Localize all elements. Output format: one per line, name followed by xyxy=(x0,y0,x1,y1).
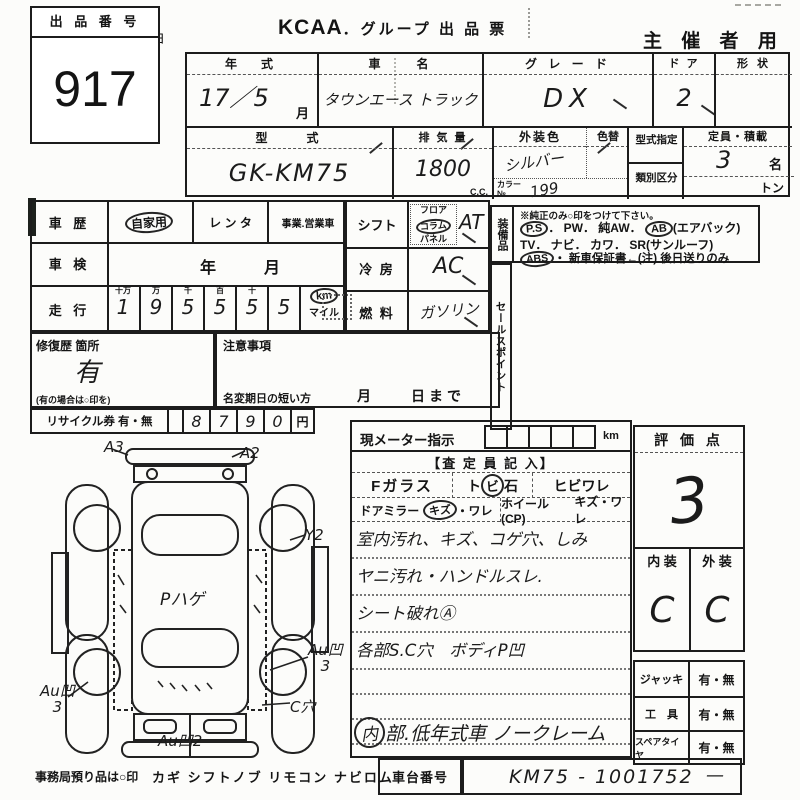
color-number-value: 199 xyxy=(529,179,560,202)
office-deposit-label: 事務局預り品は○印 xyxy=(35,768,138,785)
circled-interior-mark: 内 xyxy=(353,716,386,749)
equipment-line-3: ABS・ 新車保証書←(注) 後日送りのみ xyxy=(520,250,729,267)
sheet-title-rest: ．グループ 出 品 票 xyxy=(343,21,508,38)
damage-annotation: Pハゲ xyxy=(160,585,204,610)
year-cell: 年 式 17／5 月 xyxy=(187,54,317,126)
mileage-digit-cell: 百5 xyxy=(203,285,235,334)
recycle-digit: 0 xyxy=(263,410,290,432)
exterior-color-value: シルバー xyxy=(503,147,565,176)
recycle-digit: 7 xyxy=(209,410,236,432)
color-number-label: カラー№ xyxy=(497,180,521,198)
mileage-digit-cell: 万9 xyxy=(139,285,171,334)
shift-column-selected: コラム xyxy=(416,218,452,235)
capacity-cell: 定員・積載 3 名 トン xyxy=(682,126,792,199)
front-glass-label: Fガラス xyxy=(352,473,452,498)
repaint-label: 色替 xyxy=(586,128,629,147)
grade-label: グ レ ー ド xyxy=(484,54,652,75)
jack-row: ジャッキ 有・無 xyxy=(635,662,743,696)
fuel-value: ガソリン xyxy=(418,297,480,323)
assessor-note-line: 各部S.C穴 ボディP凹 xyxy=(352,633,630,670)
jack-label: ジャッキ xyxy=(635,662,690,696)
door-mirror-cell: ドアミラー キズ・ワレ xyxy=(352,498,500,522)
shift-label: シフト xyxy=(347,202,407,247)
meter-digit-box xyxy=(484,425,508,449)
jack-value: 有・無 xyxy=(690,662,743,696)
recycle-label: リサイクル券 有・無 xyxy=(32,410,167,432)
meter-digit-box xyxy=(528,425,552,449)
type-designation-label: 型式指定 xyxy=(629,128,684,164)
damage-annotation: Au凹 3 xyxy=(40,683,75,715)
exterior-rating-label: 外 装 xyxy=(691,549,743,571)
grade-value: DX xyxy=(484,75,652,123)
wheel-cell: ホイール(CP)キズ・ワレ xyxy=(500,498,630,522)
recycle-digit: 9 xyxy=(236,410,263,432)
chassis-number-dash: — xyxy=(706,765,724,786)
scan-artifact xyxy=(528,8,530,38)
inspection-block: 現メーター指示 km 【査 定 員 記 入】 Fガラス トビ石 ヒビワレ ドアミ… xyxy=(350,420,632,758)
meter-label: 現メーター指示 xyxy=(360,429,455,449)
history-rental-option: レ ン タ xyxy=(192,202,267,242)
classification-label: 類別区分 xyxy=(629,164,684,201)
exterior-color-label: 外装色 xyxy=(494,128,586,147)
repair-history-note: (有の場合は○印を) xyxy=(36,393,110,406)
repair-history-value: 有 xyxy=(74,352,100,389)
lot-number-value: 917 xyxy=(32,60,158,118)
meter-digit-box xyxy=(550,425,574,449)
color-number-row: カラー№ 199 xyxy=(494,178,629,201)
displacement-label: 排 気 量 xyxy=(394,128,492,149)
exterior-rating-value: C xyxy=(691,571,743,650)
model-code-value: GK-KM75 xyxy=(187,149,392,197)
tools-row: 工 具 有・無 xyxy=(635,696,743,730)
history-box: 車 歴 自家用 レ ン タ 事業.営業車 車 検 年 月 走 行 十万1 万9 … xyxy=(30,200,345,332)
chassis-number-value: KM75 - 1001752 xyxy=(509,766,694,788)
type-designation-cell: 型式指定 類別区分 xyxy=(627,126,682,199)
assessor-note-line: ヤニ汚れ・ハンドルスレ. xyxy=(352,559,630,596)
model-code-label: 型 式 xyxy=(187,128,392,149)
door-value: 2 xyxy=(654,75,714,121)
meter-row: 現メーター指示 km xyxy=(352,422,630,452)
assessor-note-line: シート破れⒶ xyxy=(352,596,630,633)
mirror-wheel-row: ドアミラー キズ・ワレ ホイール(CP)キズ・ワレ xyxy=(352,498,630,522)
tools-label: 工 具 xyxy=(635,698,690,730)
repaint-divider xyxy=(586,147,587,178)
damage-annotation: Au凹 3 xyxy=(308,642,343,674)
caution-box: 注意事項 名変期日の短い方 月 日まで xyxy=(215,332,500,408)
interior-rating-value: C xyxy=(635,571,689,650)
door-cell: ド ア 2 xyxy=(652,54,714,126)
ac-value: AC xyxy=(433,254,463,279)
history-private-option: 自家用 xyxy=(107,202,192,242)
fuel-label: 燃 料 xyxy=(347,290,407,334)
history-label: 車 歴 xyxy=(32,202,107,242)
meter-km-unit: km xyxy=(603,430,619,442)
ac-label: 冷 房 xyxy=(347,247,407,290)
exterior-color-cell: 外装色 色替 シルバー カラー№ 199 xyxy=(492,126,627,199)
repair-history-box: 修復歴 箇所 有 (有の場合は○印を) xyxy=(30,332,215,408)
damage-annotation: C穴 xyxy=(290,696,315,717)
recycle-digit: 8 xyxy=(182,410,209,432)
shift-value: AT xyxy=(459,210,483,234)
displacement-unit: C.C. xyxy=(470,187,488,197)
inspection-label: 車 検 xyxy=(32,242,107,285)
assessor-note-line: 室内汚れ、キズ、コゲ穴、しみ xyxy=(352,522,630,559)
mirror-scratch-selected: キズ xyxy=(422,499,457,521)
interior-rating-label: 内 装 xyxy=(635,549,689,571)
deposit-items: カギ シフトノブ リモコン ナビロム xyxy=(152,767,394,786)
year-value: 17／5 xyxy=(199,78,269,113)
accessories-box: ジャッキ 有・無 工 具 有・無 スペアタイヤ 有・無 xyxy=(633,660,745,765)
lot-number-label: 出 品 番 号 xyxy=(32,8,158,38)
recycle-yen-unit: 円 xyxy=(290,410,313,432)
transfer-deadline-value: 月 日まで xyxy=(357,386,465,406)
recycle-fee-row: リサイクル券 有・無 8 7 9 0 円 xyxy=(30,408,315,434)
sheet-title: KCAA．グループ 出 品 票 xyxy=(278,16,507,40)
year-unit: 月 xyxy=(296,103,309,122)
car-name-label: 車 名 xyxy=(319,54,482,75)
drivetrain-divider xyxy=(407,202,409,334)
organizer-copy-label: 主 催 者 用 xyxy=(643,26,784,53)
abs-selected: ABS xyxy=(519,250,554,268)
mileage-digit-cell: 千5 xyxy=(171,285,203,334)
tools-value: 有・無 xyxy=(690,698,743,730)
scan-artifact xyxy=(735,4,781,6)
shape-label: 形 状 xyxy=(716,54,792,75)
mileage-label: 走 行 xyxy=(32,285,107,334)
shift-options: フロア コラム パネル xyxy=(410,204,457,245)
capacity-label: 定員・積載 xyxy=(684,128,792,147)
auction-sheet: ヨ 出 品 番 号 917 KCAA．グループ 出 品 票 主 催 者 用 年 … xyxy=(0,0,800,800)
grade-cell: グ レ ー ド DX xyxy=(482,54,652,126)
damage-annotation: Y2 xyxy=(305,526,324,544)
recycle-gap-cell xyxy=(167,410,182,432)
car-name-cell: 車 名 タウンエース トラック xyxy=(317,54,482,126)
equipment-label: 装備品 xyxy=(492,207,514,261)
capacity-divider xyxy=(684,176,794,177)
rating-box: 評 価 点 3 内 装 外 装 C C xyxy=(633,425,745,652)
vehicle-info-table: 年 式 17／5 月 車 名 タウンエース トラック グ レ ー ド DX ド … xyxy=(185,52,790,197)
meter-digit-box xyxy=(572,425,596,449)
sheet-title-kcaa: KCAA xyxy=(278,16,343,39)
rating-score: 3 xyxy=(630,448,747,553)
mileage-digit-cell: 5 xyxy=(267,285,299,334)
displacement-value: 1800 xyxy=(394,149,492,189)
assessor-note-line-empty xyxy=(352,670,630,695)
load-unit: トン xyxy=(760,179,784,196)
damage-annotation: A3 xyxy=(104,438,124,456)
displacement-cell: 排 気 量 1800 C.C. xyxy=(392,126,492,199)
year-label: 年 式 xyxy=(187,54,317,75)
equipment-box: 装備品 ※純正のみ○印をつけて下さい。 P.S． PW． 純AW． AB(エアバ… xyxy=(490,205,760,263)
model-code-cell: 型 式 GK-KM75 xyxy=(187,126,392,199)
mileage-digit-cell: 十万1 xyxy=(107,285,139,334)
capacity-value: 3 xyxy=(716,146,731,174)
inspection-month-unit: 月 xyxy=(264,254,280,278)
chassis-number-cell: KM75 - 1001752 — xyxy=(462,758,742,795)
history-commercial-option: 事業.営業車 xyxy=(267,202,347,242)
damage-annotation: Au凹2 xyxy=(158,730,202,751)
lot-number-box: 出 品 番 号 917 xyxy=(30,6,160,144)
damage-annotation: A2 xyxy=(240,444,260,462)
transfer-deadline-label: 名変期日の短い方 xyxy=(223,390,311,406)
door-label: ド ア xyxy=(654,54,714,75)
assessor-entry-label: 【査 定 員 記 入】 xyxy=(352,452,630,473)
capacity-unit: 名 xyxy=(769,154,782,173)
caution-label: 注意事項 xyxy=(223,337,271,354)
drivetrain-box: シフト フロア コラム パネル AT 冷 房 AC 燃 料 ガソリン xyxy=(345,200,490,332)
car-name-value: タウンエース トラック xyxy=(319,75,482,123)
inspection-year-unit: 年 xyxy=(200,254,216,278)
equipment-line-1: P.S． PW． 純AW． AB(エアバック) xyxy=(520,219,740,237)
shape-cell: 形 状 xyxy=(714,54,792,126)
low-model-year-note: 内部.低年式車 ノークレーム xyxy=(354,717,606,748)
mileage-digit-cell: 十5 xyxy=(235,285,267,334)
meter-digit-box xyxy=(506,425,530,449)
